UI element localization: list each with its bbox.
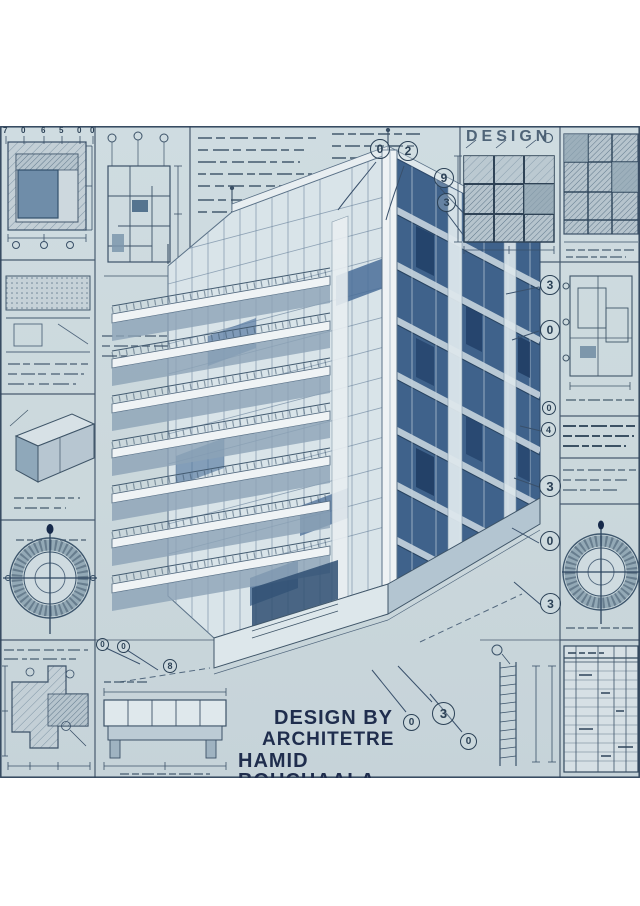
- callout-circle: 8: [163, 659, 177, 673]
- axis-label: 5: [59, 126, 63, 135]
- callout-circle: 9: [434, 168, 454, 188]
- credit-line-3: HAMID BOUCHAALA: [238, 749, 438, 778]
- callout-circle: 3: [437, 193, 456, 212]
- blueprint-canvas: DESIGN 7 0 6 5 0 0 0 2 9 3 3 0 0 4 3 0 3…: [0, 126, 640, 778]
- design-header-label: DESIGN: [466, 128, 558, 146]
- credit-block: DESIGN BY ARCHITETRE HAMID BOUCHAALA: [238, 708, 438, 778]
- callout-circle: 3: [539, 475, 561, 497]
- callout-circle: 4: [541, 422, 556, 437]
- callout-circle: 3: [540, 275, 560, 295]
- callout-circle: 0: [370, 139, 390, 159]
- axis-label: 0: [21, 126, 25, 135]
- blueprint-poster: DESIGN 7 0 6 5 0 0 0 2 9 3 3 0 0 4 3 0 3…: [0, 0, 640, 906]
- callout-circle: 0: [96, 638, 109, 651]
- axis-label: 0: [77, 126, 81, 135]
- callout-circle: 0: [117, 640, 130, 653]
- callout-circle: 0: [460, 733, 477, 750]
- credit-line-2: ARCHITETRE: [238, 728, 438, 749]
- axis-label: 0: [90, 126, 94, 135]
- callout-circle: 0: [542, 401, 556, 415]
- callout-circle: 3: [540, 593, 561, 614]
- callout-circle: 0: [540, 320, 560, 340]
- callout-circle: 2: [398, 141, 418, 161]
- callout-circle: 0: [540, 531, 560, 551]
- text-overlay: DESIGN 7 0 6 5 0 0 0 2 9 3 3 0 0 4 3 0 3…: [0, 126, 640, 778]
- axis-label: 7: [3, 126, 7, 135]
- axis-label: 6: [41, 126, 45, 135]
- credit-line-1: DESIGN BY: [238, 708, 438, 728]
